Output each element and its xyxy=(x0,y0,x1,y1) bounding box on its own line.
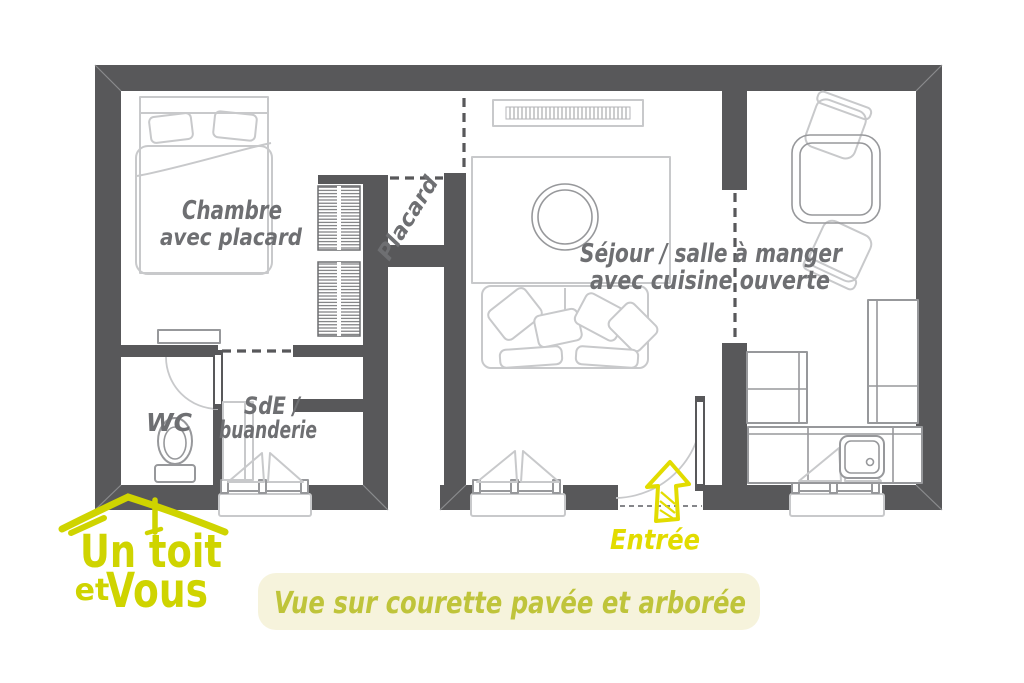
kitchen-counter xyxy=(748,427,922,483)
wall-sde-stub xyxy=(293,399,363,412)
entrance-door xyxy=(616,396,705,506)
wall-top xyxy=(95,65,942,91)
entrance-arrow xyxy=(647,462,689,521)
wall-bedroom-right xyxy=(363,175,388,510)
wall-kitchen-stub-top xyxy=(722,91,747,190)
window-sill xyxy=(471,494,565,516)
bathroom-label-line2: buanderie xyxy=(219,416,317,444)
bed-pillow xyxy=(149,113,194,144)
sofa-pillow xyxy=(486,286,544,343)
wall-bedroom-bottom-2 xyxy=(293,345,363,357)
console-radiator xyxy=(506,107,630,119)
entrance-marker: Entrée xyxy=(610,462,700,556)
kitchen-window xyxy=(790,480,884,516)
banner-text: Vue sur courette pavée et arborée xyxy=(274,586,746,621)
dining-chair xyxy=(801,90,873,162)
window-sill xyxy=(219,494,311,516)
window-swing xyxy=(477,451,517,482)
wall-closet-stub xyxy=(318,175,363,184)
sofa xyxy=(482,286,660,368)
toilet-tank xyxy=(155,465,195,482)
entrance-label: Entrée xyxy=(610,523,700,556)
wall-bottom-sejour-4 xyxy=(882,485,942,510)
door-leaf xyxy=(696,398,704,490)
kitchen-cabinet-left xyxy=(747,352,807,423)
logo: Un toit et Vous xyxy=(62,497,225,619)
logo-vous: Vous xyxy=(106,563,208,619)
living-label-line1: Séjour / salle à manger xyxy=(580,239,844,269)
wall-bedroom-bottom-1 xyxy=(121,345,218,357)
door-arc xyxy=(166,357,218,409)
radiator xyxy=(158,330,220,343)
wall-bottom-sejour-3 xyxy=(703,485,792,510)
living-furniture xyxy=(472,90,880,368)
wall-bottom-sejour-2 xyxy=(563,485,618,510)
wc-label: WC xyxy=(146,408,193,437)
wall-left xyxy=(95,65,121,510)
kitchen-fixtures xyxy=(747,300,922,483)
wc-door xyxy=(166,350,223,409)
sofa-seat xyxy=(575,346,638,368)
kitchen-cabinet-tall xyxy=(868,300,918,423)
logo-et: et xyxy=(75,573,110,608)
floor-plan-page: Chambre avec placard Placard Séjour / sa… xyxy=(0,0,1024,683)
bathroom-window xyxy=(219,453,311,516)
sofa-seat xyxy=(499,346,562,368)
window-sill xyxy=(790,494,884,516)
door-leaf xyxy=(214,352,222,408)
banner: Vue sur courette pavée et arborée xyxy=(258,573,760,630)
wall-sejour-left xyxy=(444,173,466,510)
floor-plan: Chambre avec placard Placard Séjour / sa… xyxy=(0,0,1024,683)
bed-pillow xyxy=(213,111,257,141)
wall-kitchen-bottom xyxy=(722,343,747,485)
bedroom-label-line2: avec placard xyxy=(160,225,302,251)
bedroom-label-line1: Chambre xyxy=(182,196,282,226)
living-label-line2: avec cuisine ouverte xyxy=(590,266,830,296)
dining-table xyxy=(792,135,880,223)
living-window xyxy=(471,451,565,516)
